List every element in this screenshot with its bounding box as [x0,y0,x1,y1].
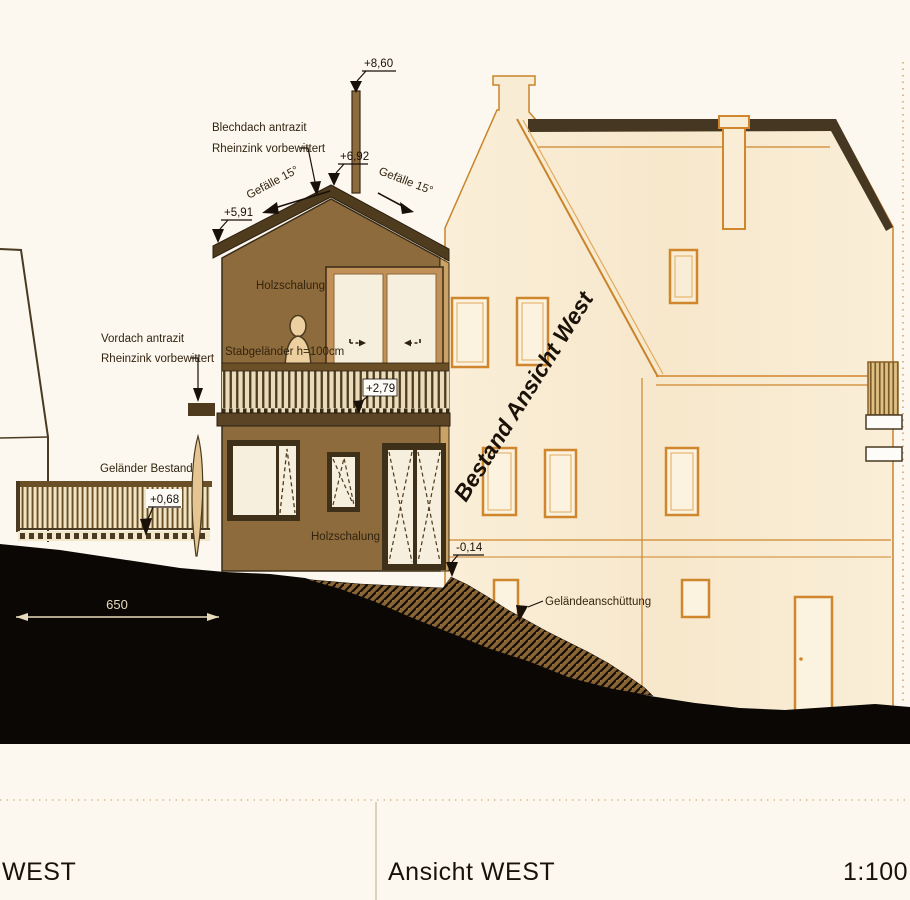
existing-door [795,597,832,712]
svg-text:Gefälle 15°: Gefälle 15° [377,166,435,198]
window [682,580,709,617]
svg-text:+0,68: +0,68 [150,494,179,506]
svg-text:+6,92: +6,92 [340,151,369,163]
elevation-drawing: 650 Bestand Ansicht West +8,60 +6,92 +5,… [0,0,910,900]
ridge-band [528,119,841,132]
svg-text:Gefälle 15°: Gefälle 15° [245,164,301,201]
svg-text:+8,60: +8,60 [364,58,393,70]
svg-text:Geländeanschüttung: Geländeanschüttung [545,596,651,608]
svg-text:Vordach antrazit: Vordach antrazit [101,333,185,345]
lower-french-door [382,443,446,570]
existing-terrace-railing [16,481,212,541]
lower-window-small [327,452,360,512]
elevation-marker-ridge: +6,92 [328,151,369,186]
canopy-vordach [188,403,215,416]
sheet-scale: 1:100 [820,858,908,887]
svg-text:Blechdach antrazit: Blechdach antrazit [212,122,307,134]
sheet-title-center: Ansicht WEST [388,858,555,887]
cladding-lower-label: Holzschalung [311,531,380,543]
chimney-flue [352,91,360,193]
svg-text:+5,91: +5,91 [224,207,253,219]
existing-chimney [719,116,749,229]
balcony-railing [222,363,449,413]
balcony-railing-label: Stabgeländer h=100cm [225,346,344,358]
canopy-label: Vordach antrazit Rheinzink vorbewittert [101,333,215,402]
new-building [213,91,450,571]
dimension-650-value: 650 [106,597,128,612]
svg-text:+2,79: +2,79 [366,383,395,395]
elevation-marker-chimney-top: +8,60 [350,58,396,93]
cladding-upper-label: Holzschalung [256,280,325,292]
elevation-sheet: 650 Bestand Ansicht West +8,60 +6,92 +5,… [0,0,910,900]
sheet-title-left: WEST [2,858,76,887]
svg-text:-0,14: -0,14 [456,542,483,554]
roof-window [670,250,697,303]
slope-label-right: Gefälle 15° [377,166,435,214]
lower-window-left [227,440,300,521]
balcony-slab [217,413,450,426]
existing-railing-label: Geländer Bestand [100,463,193,475]
